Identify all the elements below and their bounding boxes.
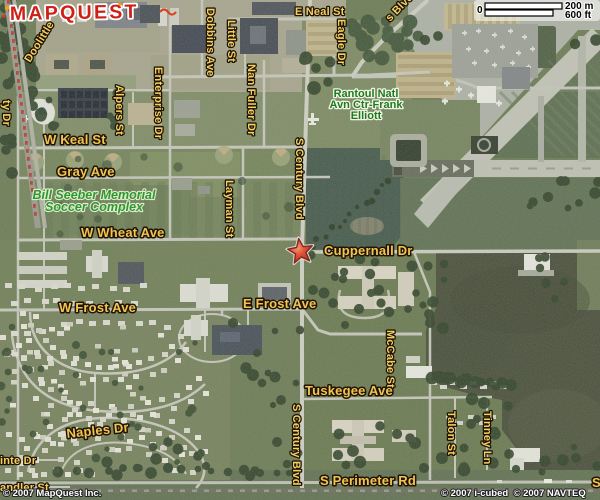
svg-text:600 ft: 600 ft — [565, 10, 592, 21]
svg-text:Alpers St: Alpers St — [113, 85, 125, 135]
svg-text:ty Dr: ty Dr — [0, 100, 12, 127]
svg-text:inte Dr: inte Dr — [0, 455, 37, 467]
svg-text:© 2007 MapQuest Inc.: © 2007 MapQuest Inc. — [3, 488, 101, 499]
svg-text:S Century Blvd: S Century Blvd — [293, 138, 305, 220]
svg-text:Layman St: Layman St — [223, 180, 235, 238]
svg-text:W Wheat Ave: W Wheat Ave — [81, 225, 165, 240]
svg-text:Gray Ave: Gray Ave — [57, 164, 115, 179]
svg-text:Soccer Complex: Soccer Complex — [45, 200, 144, 214]
svg-text:S Century Blvd: S Century Blvd — [290, 404, 302, 486]
svg-text:© 2007 i-cubed © 2007 NAVTEQ: © 2007 i-cubed © 2007 NAVTEQ — [441, 488, 586, 499]
svg-text:Nan Fuller Dr: Nan Fuller Dr — [245, 64, 257, 136]
svg-text:Eagle Dr: Eagle Dr — [335, 19, 347, 66]
svg-text:Cuppernall Dr: Cuppernall Dr — [324, 243, 413, 258]
svg-text:Elliott: Elliott — [351, 110, 382, 122]
svg-text:Tuskegee Ave: Tuskegee Ave — [305, 383, 393, 398]
svg-text:W Frost Ave: W Frost Ave — [59, 300, 136, 315]
svg-text:W Keal St: W Keal St — [44, 132, 106, 147]
svg-text:McCabe St: McCabe St — [384, 330, 396, 388]
svg-text:E Neal St: E Neal St — [295, 6, 345, 18]
svg-text:S Perimeter Rd: S Perimeter Rd — [320, 473, 416, 488]
svg-text:S: S — [592, 475, 600, 490]
svg-text:Little St: Little St — [225, 20, 237, 62]
svg-text:Tinney Ln: Tinney Ln — [481, 411, 493, 465]
svg-text:E Frost Ave: E Frost Ave — [243, 296, 316, 311]
svg-text:0: 0 — [477, 5, 483, 16]
svg-text:Dobbins Ave: Dobbins Ave — [204, 8, 216, 77]
svg-text:Enterprise Dr: Enterprise Dr — [152, 67, 164, 140]
svg-text:Talon St: Talon St — [445, 411, 457, 455]
